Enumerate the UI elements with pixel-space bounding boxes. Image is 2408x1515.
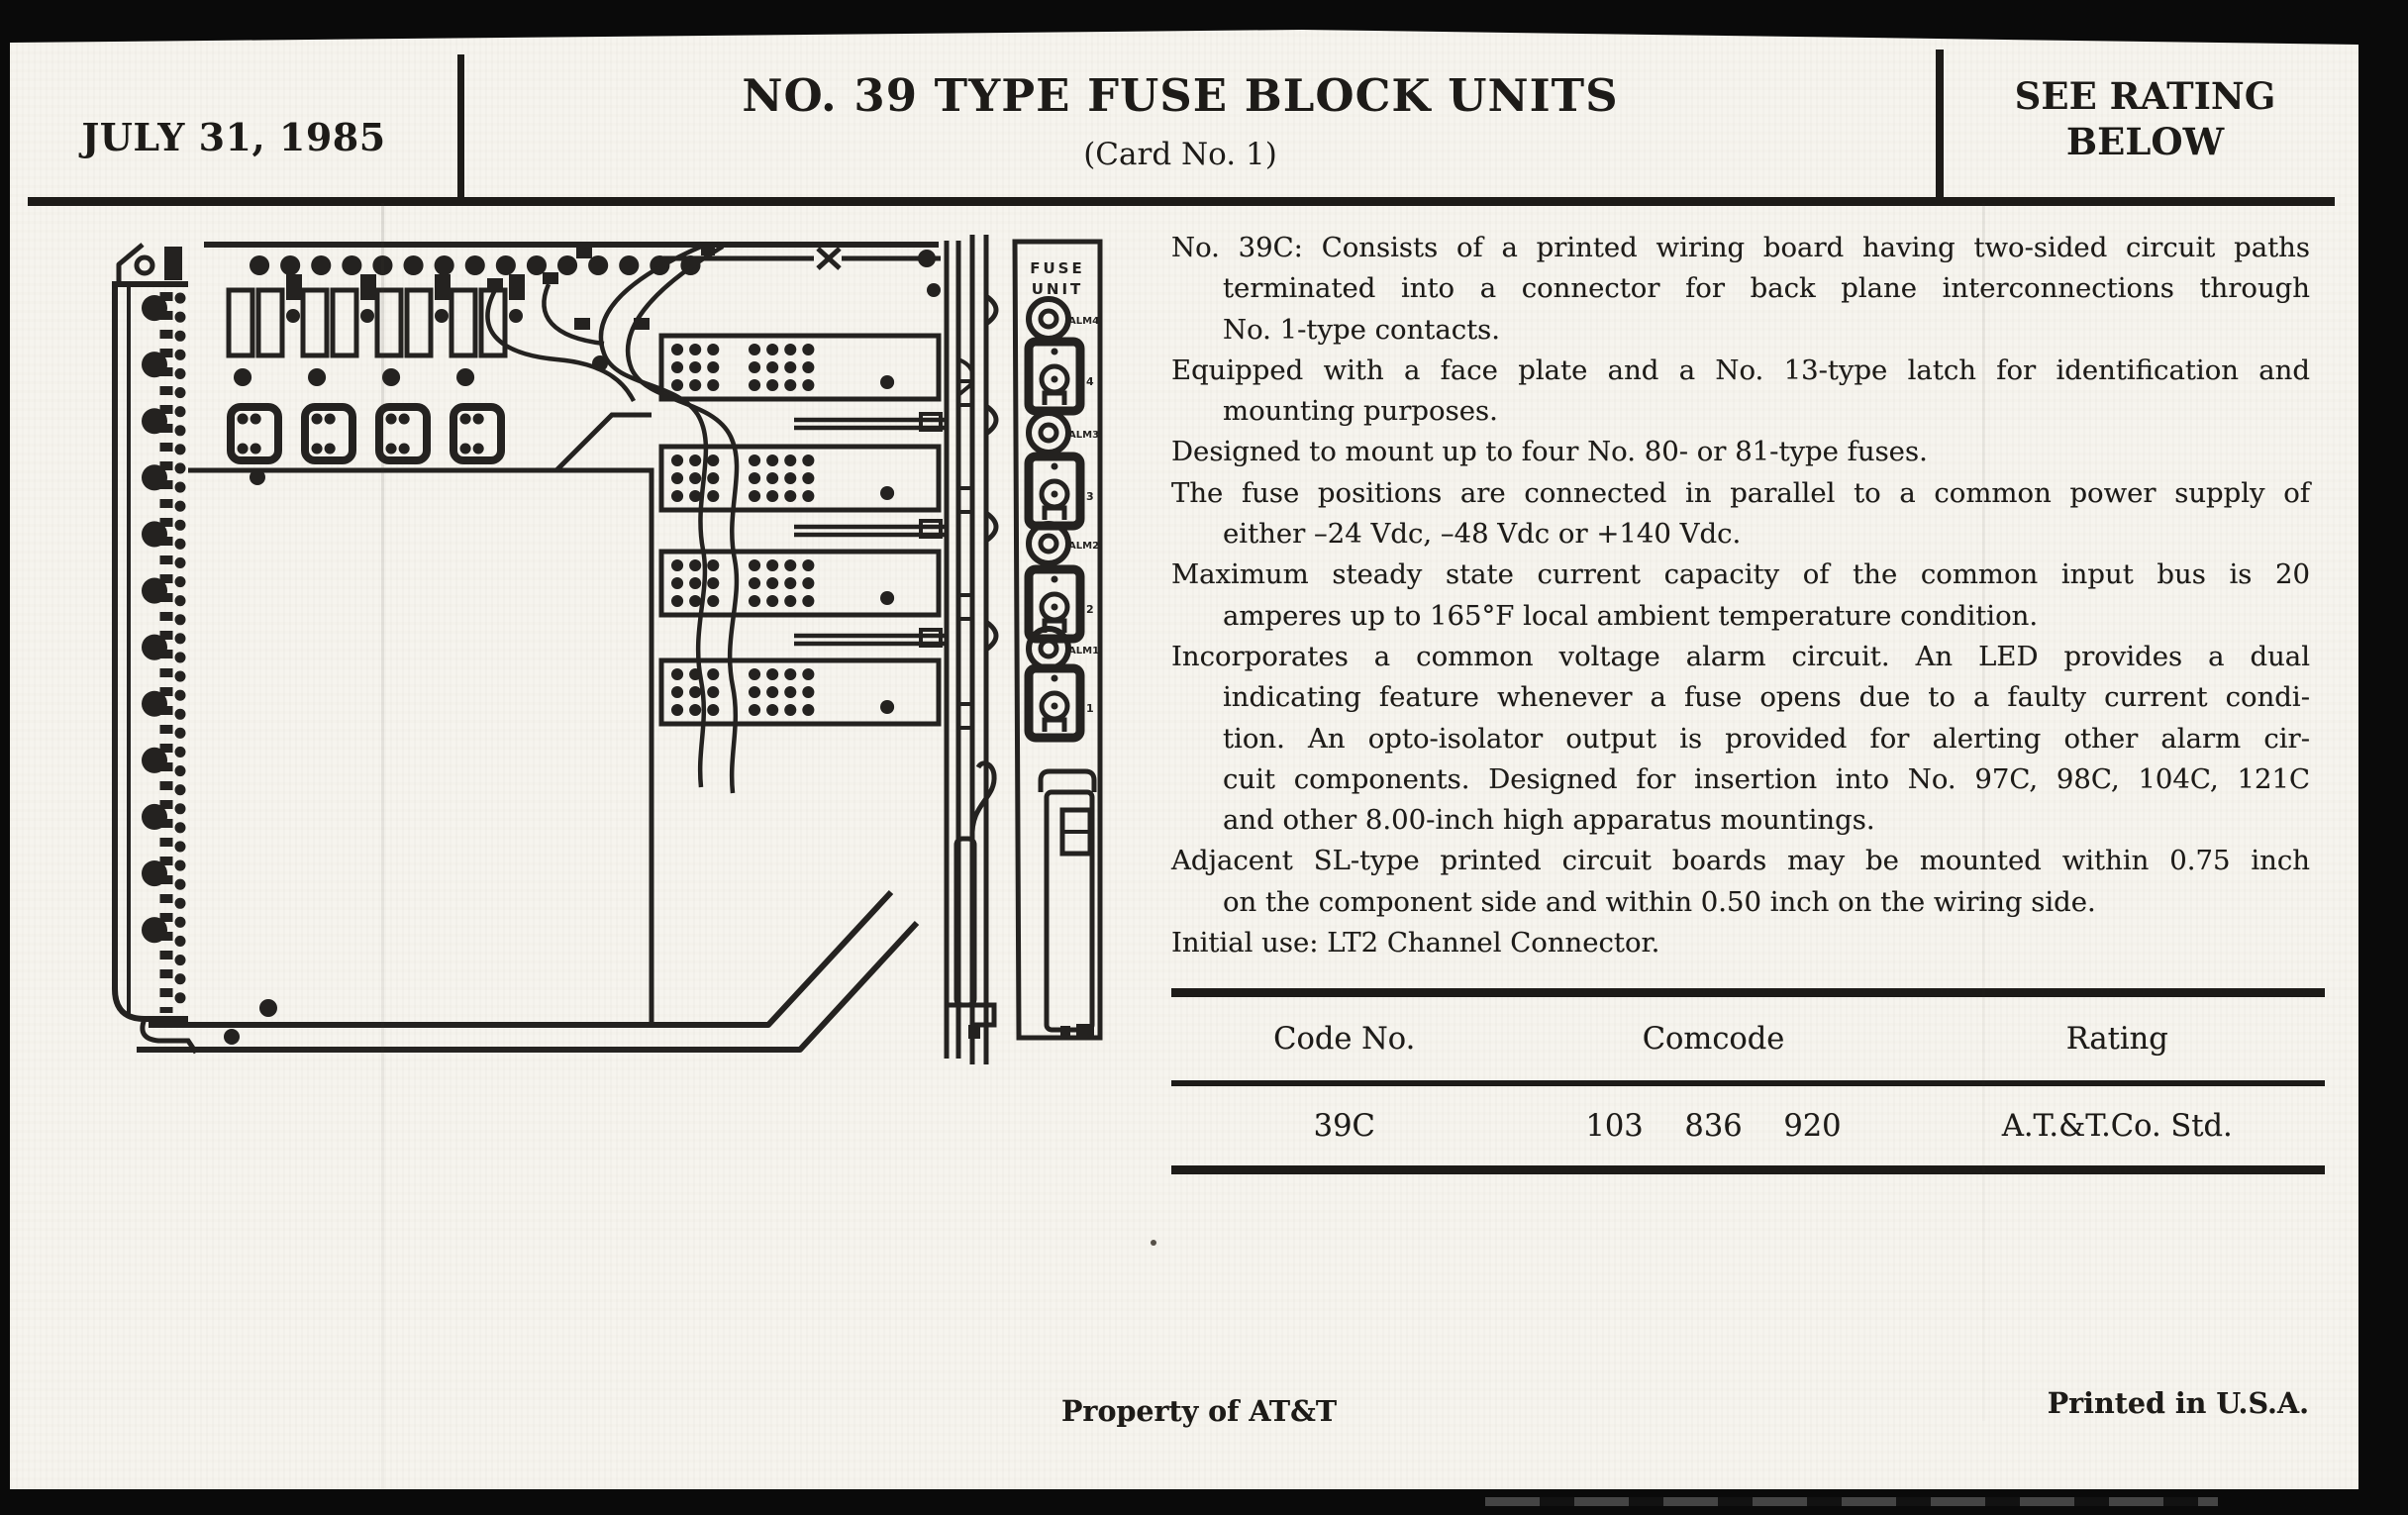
spec-text-line: Maximum steady state current capacity of… bbox=[1171, 555, 2310, 595]
scanned-datasheet: JULY 31, 1985 NO. 39 TYPE FUSE BLOCK UNI… bbox=[0, 0, 2408, 1515]
fuse-holder-4: 4 bbox=[1029, 342, 1094, 411]
spec-text-line: mounting purposes. bbox=[1171, 391, 2310, 432]
comcode-value: 103 836 920 bbox=[1518, 1109, 1910, 1144]
table-rule-top bbox=[1171, 988, 2325, 997]
spec-text-line: and other 8.00-inch high apparatus mount… bbox=[1171, 800, 2310, 841]
spec-text-line: Designed to mount up to four No. 80- or … bbox=[1171, 432, 2310, 472]
spec-text-line: either –24 Vdc, –48 Vdc or +140 Vdc. bbox=[1171, 514, 2310, 555]
table-header-rating: Rating bbox=[1910, 1022, 2325, 1057]
fuse-unit-faceplate-drawing: FUSE UNIT ALM4 4 ALM3 bbox=[1003, 238, 1112, 1052]
svg-text:1: 1 bbox=[1086, 702, 1094, 715]
table-header-code: Code No. bbox=[1171, 1022, 1518, 1057]
fuse-block-board-drawing bbox=[109, 233, 1010, 1069]
code-no-value: 39C bbox=[1171, 1109, 1518, 1144]
table-header-comcode: Comcode bbox=[1518, 1022, 1910, 1057]
table-header-row: Code No. Comcode Rating bbox=[1171, 997, 2325, 1080]
svg-text:4: 4 bbox=[1086, 375, 1094, 388]
document-date: JULY 31, 1985 bbox=[32, 115, 436, 159]
spec-text-line: Adjacent SL-type printed circuit boards … bbox=[1171, 841, 2310, 881]
footer-printed-note: Printed in U.S.A. bbox=[2048, 1386, 2309, 1420]
card-number-subtitle: (Card No. 1) bbox=[443, 137, 1918, 172]
rating-note-line: SEE RATING bbox=[1945, 73, 2346, 119]
svg-text:3: 3 bbox=[1086, 490, 1094, 503]
spec-text-line: cuit components. Designed for insertion … bbox=[1171, 759, 2310, 800]
rating-note-line: BELOW bbox=[1945, 119, 2346, 164]
fuse-holder-3: 3 bbox=[1029, 456, 1094, 526]
scan-edge-artifact bbox=[10, 30, 1302, 43]
spec-text-line: amperes up to 165°F local ambient temper… bbox=[1171, 596, 2310, 637]
board-outline bbox=[119, 245, 939, 1050]
fuse-holder-1: 1 bbox=[1029, 668, 1094, 738]
spec-text-line: Incorporates a common voltage alarm circ… bbox=[1171, 637, 2310, 677]
component-area bbox=[188, 250, 941, 1045]
svg-text:ALM3: ALM3 bbox=[1068, 430, 1099, 441]
spec-text-line: Equipped with a face plate and a No. 13-… bbox=[1171, 351, 2310, 391]
scan-edge-artifact bbox=[1302, 30, 2358, 45]
footer-property-note: Property of AT&T bbox=[1061, 1394, 1337, 1428]
rating-table: Code No. Comcode Rating 39C 103 836 920 … bbox=[1171, 988, 2325, 1174]
alarm-led-4: ALM4 bbox=[1029, 299, 1099, 339]
latch-hook-side-view bbox=[972, 763, 994, 839]
table-rule-bottom bbox=[1171, 1165, 2325, 1174]
page-title: NO. 39 TYPE FUSE BLOCK UNITS bbox=[443, 69, 1918, 122]
header-rule bbox=[28, 197, 2335, 206]
spec-text-line: No. 1-type contacts. bbox=[1171, 310, 2310, 351]
edge-connector-strip bbox=[115, 284, 196, 1053]
table-row: 39C 103 836 920 A.T.&T.Co. Std. bbox=[1171, 1086, 2325, 1165]
rating-value: A.T.&T.Co. Std. bbox=[1910, 1109, 2325, 1144]
header-divider-right bbox=[1936, 50, 1944, 201]
spec-text-line: tion. An opto-isolator output is provide… bbox=[1171, 719, 2310, 759]
scan-speck-artifact bbox=[1151, 1240, 1156, 1246]
svg-text:ALM1: ALM1 bbox=[1068, 646, 1099, 656]
spec-text-line: indicating feature whenever a fuse opens… bbox=[1171, 677, 2310, 718]
spec-text-line: on the component side and within 0.50 in… bbox=[1171, 882, 2310, 923]
rating-note: SEE RATING BELOW bbox=[1945, 73, 2346, 164]
scan-edge-artifact bbox=[1485, 1497, 2218, 1506]
spec-text-line: No. 39C: Consists of a printed wiring bo… bbox=[1171, 228, 2310, 268]
fuse-link-symbol bbox=[818, 249, 840, 268]
svg-text:ALM2: ALM2 bbox=[1068, 541, 1099, 552]
svg-text:2: 2 bbox=[1086, 603, 1094, 616]
latch bbox=[1041, 771, 1094, 1040]
description-text: No. 39C: Consists of a printed wiring bo… bbox=[1171, 228, 2310, 963]
alarm-led-3: ALM3 bbox=[1029, 413, 1099, 453]
spec-text-line: Initial use: LT2 Channel Connector. bbox=[1171, 923, 2310, 963]
fuse-position-footprints bbox=[661, 336, 939, 724]
faceplate-title: FUSE bbox=[1030, 259, 1084, 277]
faceplate-rail-side-view bbox=[947, 235, 996, 1064]
document-page: JULY 31, 1985 NO. 39 TYPE FUSE BLOCK UNI… bbox=[10, 30, 2358, 1489]
svg-text:ALM4: ALM4 bbox=[1068, 316, 1099, 327]
svg-text:UNIT: UNIT bbox=[1032, 280, 1084, 298]
spec-text-line: The fuse positions are connected in para… bbox=[1171, 473, 2310, 514]
spec-text-line: terminated into a connector for back pla… bbox=[1171, 268, 2310, 309]
